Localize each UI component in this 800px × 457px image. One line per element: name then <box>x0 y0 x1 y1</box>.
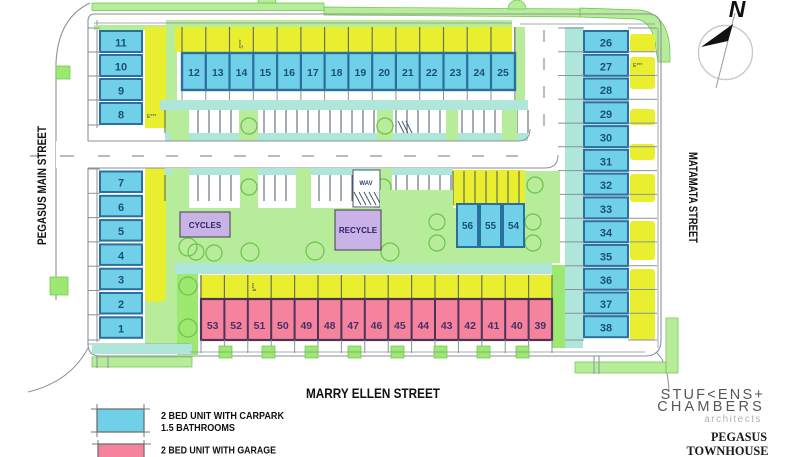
svg-text:27: 27 <box>600 61 612 73</box>
svg-text:52: 52 <box>230 320 242 332</box>
svg-text:2 BED UNIT WITH GARAGE: 2 BED UNIT WITH GARAGE <box>161 446 276 457</box>
svg-text:PEGASUS MAIN STREET: PEGASUS MAIN STREET <box>37 126 49 245</box>
svg-text:2 BED UNIT WITH CARPARK: 2 BED UNIT WITH CARPARK <box>161 411 285 422</box>
svg-text:CHAMBERS: CHAMBERS <box>657 399 765 415</box>
svg-text:TOWNHOUSE: TOWNHOUSE <box>687 443 769 457</box>
svg-text:50: 50 <box>277 320 289 332</box>
svg-text:42: 42 <box>464 320 476 332</box>
svg-text:37: 37 <box>600 299 612 311</box>
svg-text:55: 55 <box>485 221 497 232</box>
svg-text:54: 54 <box>508 221 520 232</box>
svg-text:32: 32 <box>600 180 612 192</box>
svg-text:33: 33 <box>600 204 612 216</box>
svg-text:PEGASUS: PEGASUS <box>711 429 767 444</box>
svg-text:S***: S*** <box>239 39 245 48</box>
svg-text:19: 19 <box>355 67 367 79</box>
svg-text:15: 15 <box>259 67 271 79</box>
svg-text:30: 30 <box>600 133 612 145</box>
svg-text:20: 20 <box>378 67 390 79</box>
svg-text:CYCLES: CYCLES <box>189 221 222 230</box>
svg-text:MATAMATA STREET: MATAMATA STREET <box>686 152 698 243</box>
svg-text:b***: b*** <box>252 283 258 292</box>
svg-text:48: 48 <box>324 320 336 332</box>
svg-text:14: 14 <box>236 67 248 79</box>
svg-text:35: 35 <box>600 251 612 263</box>
svg-text:56: 56 <box>462 221 474 232</box>
svg-text:E***: E*** <box>147 114 156 120</box>
svg-text:39: 39 <box>534 320 546 332</box>
svg-text:22: 22 <box>426 67 438 79</box>
svg-text:23: 23 <box>450 67 462 79</box>
svg-text:16: 16 <box>283 67 295 79</box>
svg-text:45: 45 <box>394 320 406 332</box>
svg-text:36: 36 <box>600 275 612 287</box>
svg-text:5: 5 <box>118 226 124 238</box>
svg-text:18: 18 <box>331 67 343 79</box>
svg-text:24: 24 <box>473 67 485 79</box>
svg-text:12: 12 <box>188 67 200 79</box>
svg-text:51: 51 <box>254 320 266 332</box>
svg-text:N: N <box>729 0 746 22</box>
svg-text:1.5 BATHROOMS: 1.5 BATHROOMS <box>161 423 235 434</box>
svg-text:9: 9 <box>118 86 124 98</box>
svg-text:MARRY ELLEN STREET: MARRY ELLEN STREET <box>306 386 441 401</box>
svg-text:44: 44 <box>417 320 429 332</box>
svg-text:47: 47 <box>347 320 359 332</box>
svg-text:RECYCLE: RECYCLE <box>339 226 378 235</box>
svg-text:21: 21 <box>402 67 414 79</box>
svg-text:13: 13 <box>212 67 224 79</box>
svg-text:40: 40 <box>511 320 523 332</box>
svg-text:28: 28 <box>600 85 612 97</box>
svg-text:31: 31 <box>600 156 612 168</box>
svg-text:43: 43 <box>441 320 453 332</box>
svg-text:38: 38 <box>600 323 612 335</box>
svg-text:3: 3 <box>118 275 124 287</box>
svg-text:10: 10 <box>115 62 127 74</box>
svg-text:29: 29 <box>600 109 612 121</box>
svg-text:4: 4 <box>118 250 125 262</box>
svg-text:17: 17 <box>307 67 319 79</box>
svg-text:1: 1 <box>118 323 124 335</box>
svg-text:8: 8 <box>118 110 124 122</box>
svg-text:7: 7 <box>118 178 124 190</box>
svg-text:53: 53 <box>207 320 219 332</box>
svg-text:25: 25 <box>497 67 509 79</box>
svg-text:E***: E*** <box>633 63 642 69</box>
svg-text:2: 2 <box>118 299 124 311</box>
svg-text:41: 41 <box>488 320 500 332</box>
svg-text:11: 11 <box>115 38 127 50</box>
svg-text:26: 26 <box>600 38 612 50</box>
svg-text:49: 49 <box>300 320 312 332</box>
svg-text:6: 6 <box>118 202 124 214</box>
svg-text:WAV: WAV <box>359 181 372 187</box>
svg-text:34: 34 <box>600 228 613 240</box>
svg-text:46: 46 <box>371 320 383 332</box>
svg-text:architects: architects <box>704 414 762 425</box>
